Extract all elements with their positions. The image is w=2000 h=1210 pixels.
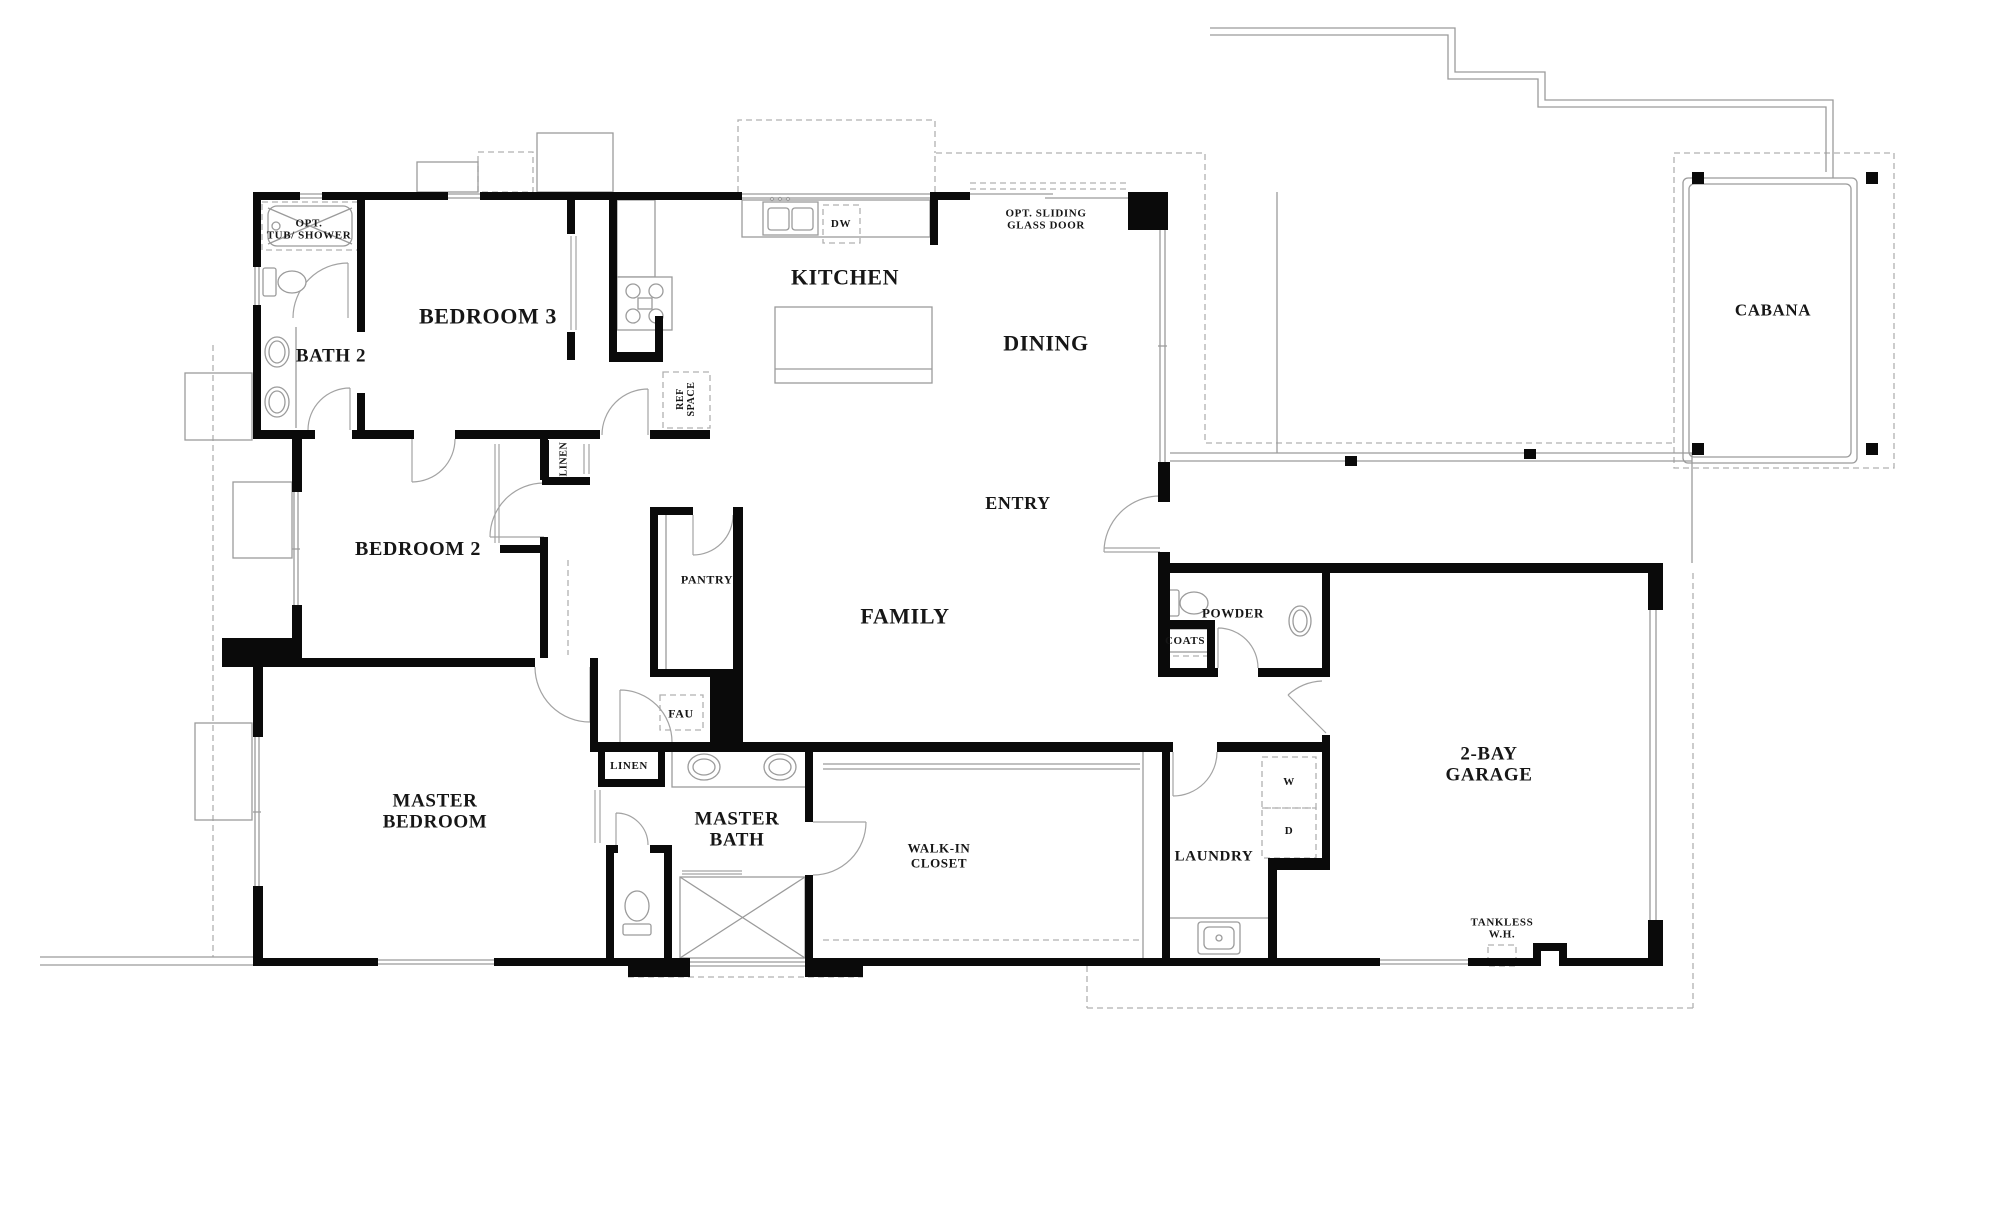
patio-post-1	[1345, 456, 1357, 466]
bath2-toilet	[263, 268, 306, 296]
side-yard-flatwork	[40, 957, 253, 965]
windows	[253, 194, 1656, 966]
bedroom2-door	[490, 483, 544, 537]
cabana-slab-outer	[1683, 178, 1857, 463]
ref-space-dashed-box	[663, 372, 710, 428]
window-shower	[690, 962, 805, 966]
vestibule-opening	[595, 790, 600, 843]
fixtures	[263, 198, 1311, 959]
opt-sliding-door-dashed	[970, 183, 1128, 189]
patio-slab-lines	[1170, 192, 1692, 563]
roof-eave-line-outer	[1210, 28, 1833, 178]
garage-man-door	[1288, 681, 1326, 733]
master-bedroom-door	[535, 667, 590, 722]
master-shower	[680, 877, 805, 958]
window-seat-bath2	[185, 373, 252, 440]
tub-fixture	[268, 206, 352, 246]
fixture-linework	[40, 28, 1857, 965]
cabana-post-ne	[1866, 172, 1878, 184]
bedroom3-closet-sliders	[571, 236, 576, 330]
dining-windows	[1158, 230, 1167, 462]
master-vanity	[672, 748, 808, 787]
powder-sink	[1289, 606, 1311, 636]
cabana-post-sw	[1692, 443, 1704, 455]
kitchen-left-counter	[617, 200, 655, 277]
powder-door	[1218, 628, 1258, 668]
window-master-left	[253, 737, 261, 886]
cabana-post-nw	[1692, 172, 1704, 184]
bath2-vanity	[265, 327, 296, 428]
fau-dashed-box	[660, 695, 703, 730]
walkin-shelving	[823, 752, 1143, 958]
linen-hall-doors	[584, 444, 589, 474]
window-garage-bottom	[1375, 960, 1468, 964]
range	[617, 277, 672, 330]
closet-door	[813, 822, 866, 875]
patio-post-2	[1524, 449, 1536, 459]
entry-door	[1104, 496, 1160, 552]
master-toilet	[623, 891, 651, 935]
hall-door	[412, 439, 455, 482]
cabana-slab-inner	[1689, 184, 1851, 457]
window-master-bottom	[378, 960, 494, 964]
bedroom3-door	[602, 389, 648, 435]
kitchen-porch-dashed	[738, 120, 935, 192]
roof-eave-line-inner	[1210, 35, 1826, 172]
bath2-door	[308, 388, 350, 430]
powder-toilet	[1167, 590, 1208, 616]
laundry-sink	[1170, 918, 1268, 954]
kitchen-window	[742, 194, 930, 198]
patio-roof-dashed	[935, 153, 1674, 443]
master-wc-door	[616, 813, 648, 845]
dryer-dashed-box	[1262, 808, 1316, 858]
fau-door	[620, 690, 672, 742]
roof-box-2	[417, 162, 478, 192]
garage-door	[1650, 610, 1656, 920]
driveway-dashed	[1087, 573, 1693, 1008]
window-bath2	[255, 267, 259, 305]
window-bedroom2	[292, 492, 300, 605]
sliding-glass-door	[970, 194, 1128, 198]
floor-plan: OPT.TUB/ SHOWERBATH 2BEDROOM 3LINENREFSP…	[0, 0, 2000, 1210]
window-top-2	[448, 194, 480, 198]
kitchen-island	[775, 307, 932, 383]
kitchen-sink	[763, 198, 818, 236]
shower-door	[682, 871, 742, 874]
walls	[222, 172, 1878, 977]
washer-dashed-box	[1262, 757, 1316, 808]
bedroom2-closet-sliders	[495, 444, 499, 543]
floor-plan-drawing	[0, 0, 2000, 1210]
cabana-post-se	[1866, 443, 1878, 455]
roof-dashed-box	[478, 152, 533, 192]
roof-box-1	[537, 133, 613, 192]
pantry-door	[693, 515, 733, 555]
cabana-roof-dashed	[1674, 153, 1894, 468]
window-seat-bedroom2	[233, 482, 292, 558]
window-top-1	[300, 194, 322, 198]
window-seat-master	[195, 723, 252, 820]
laundry-door	[1173, 752, 1217, 796]
